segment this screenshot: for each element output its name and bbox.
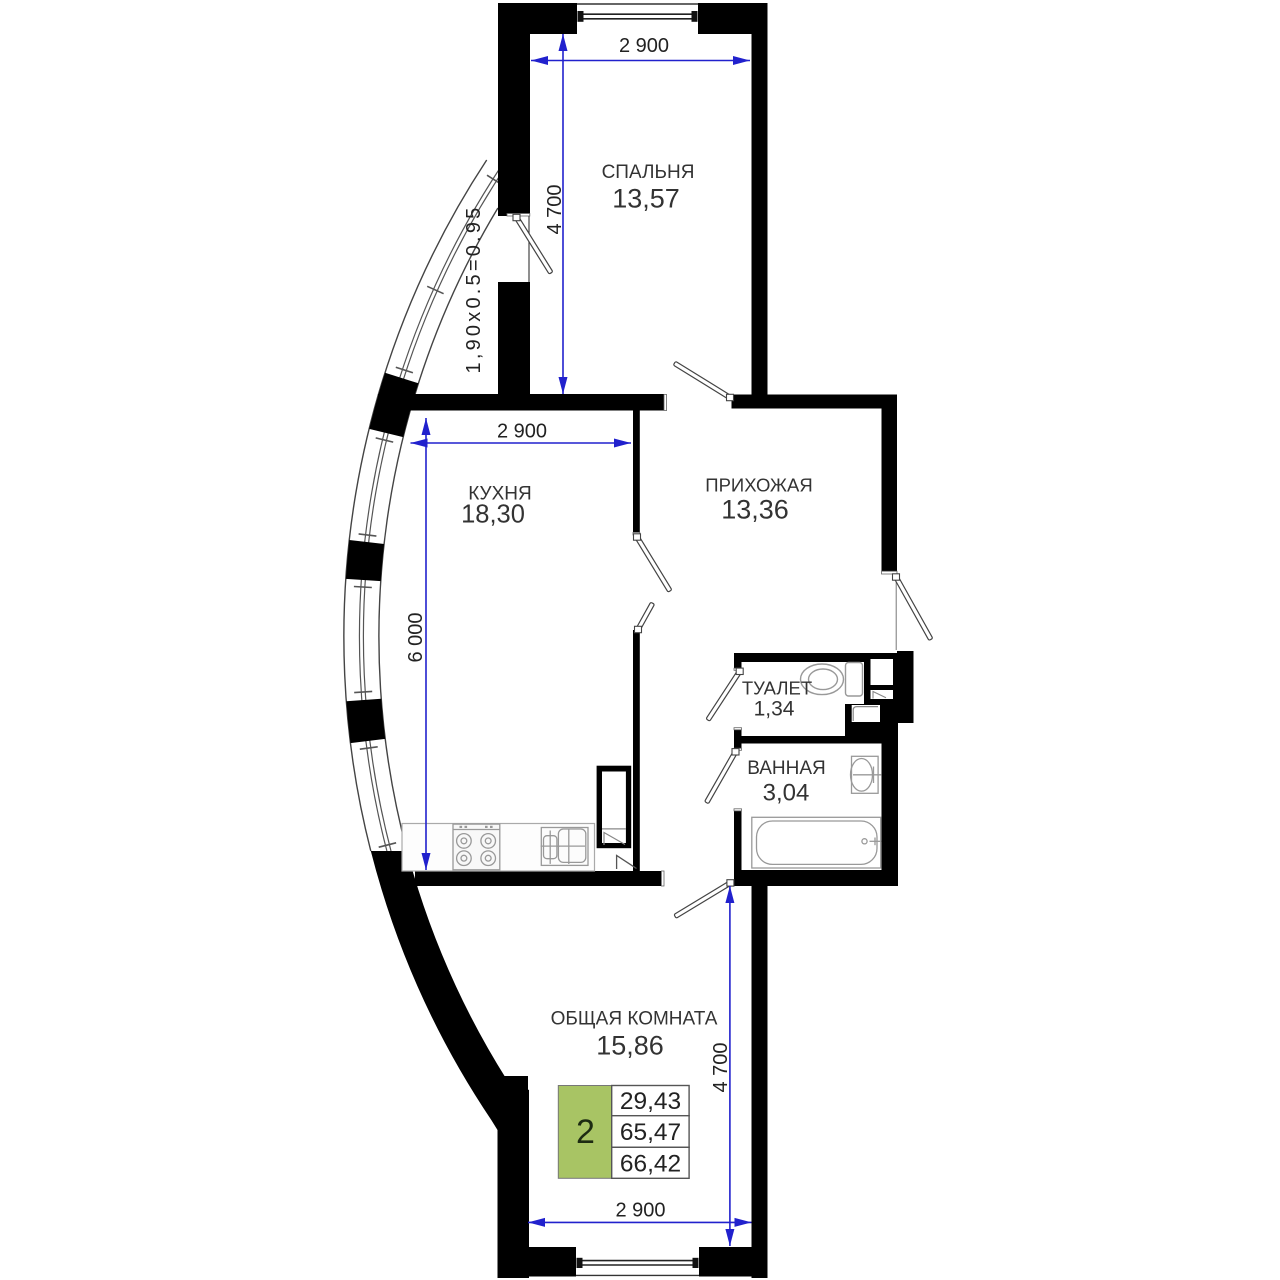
svg-text:29,43: 29,43: [620, 1088, 681, 1115]
svg-text:66,42: 66,42: [620, 1150, 681, 1177]
svg-text:3,04: 3,04: [763, 780, 810, 807]
svg-text:СПАЛЬНЯ: СПАЛЬНЯ: [602, 162, 695, 183]
svg-text:18,30: 18,30: [461, 501, 525, 529]
svg-text:ВАННАЯ: ВАННАЯ: [747, 758, 826, 779]
svg-text:1,90x0.5=0.95: 1,90x0.5=0.95: [463, 205, 485, 374]
svg-text:13,57: 13,57: [612, 184, 680, 214]
svg-text:1,34: 1,34: [754, 698, 795, 721]
svg-text:13,36: 13,36: [721, 495, 789, 525]
svg-text:2 900: 2 900: [619, 35, 669, 57]
svg-text:2: 2: [576, 1113, 595, 1151]
svg-text:ПРИХОЖАЯ: ПРИХОЖАЯ: [705, 475, 812, 496]
svg-text:ОБЩАЯ КОМНАТА: ОБЩАЯ КОМНАТА: [551, 1009, 718, 1030]
svg-text:ТУАЛЕТ: ТУАЛЕТ: [742, 678, 812, 699]
svg-text:15,86: 15,86: [596, 1031, 664, 1061]
svg-text:6 000: 6 000: [405, 612, 427, 662]
svg-text:65,47: 65,47: [620, 1119, 681, 1146]
svg-text:2 900: 2 900: [615, 1200, 665, 1222]
svg-text:4 700: 4 700: [544, 184, 566, 234]
svg-text:2 900: 2 900: [497, 421, 547, 443]
svg-text:4 700: 4 700: [710, 1042, 732, 1092]
